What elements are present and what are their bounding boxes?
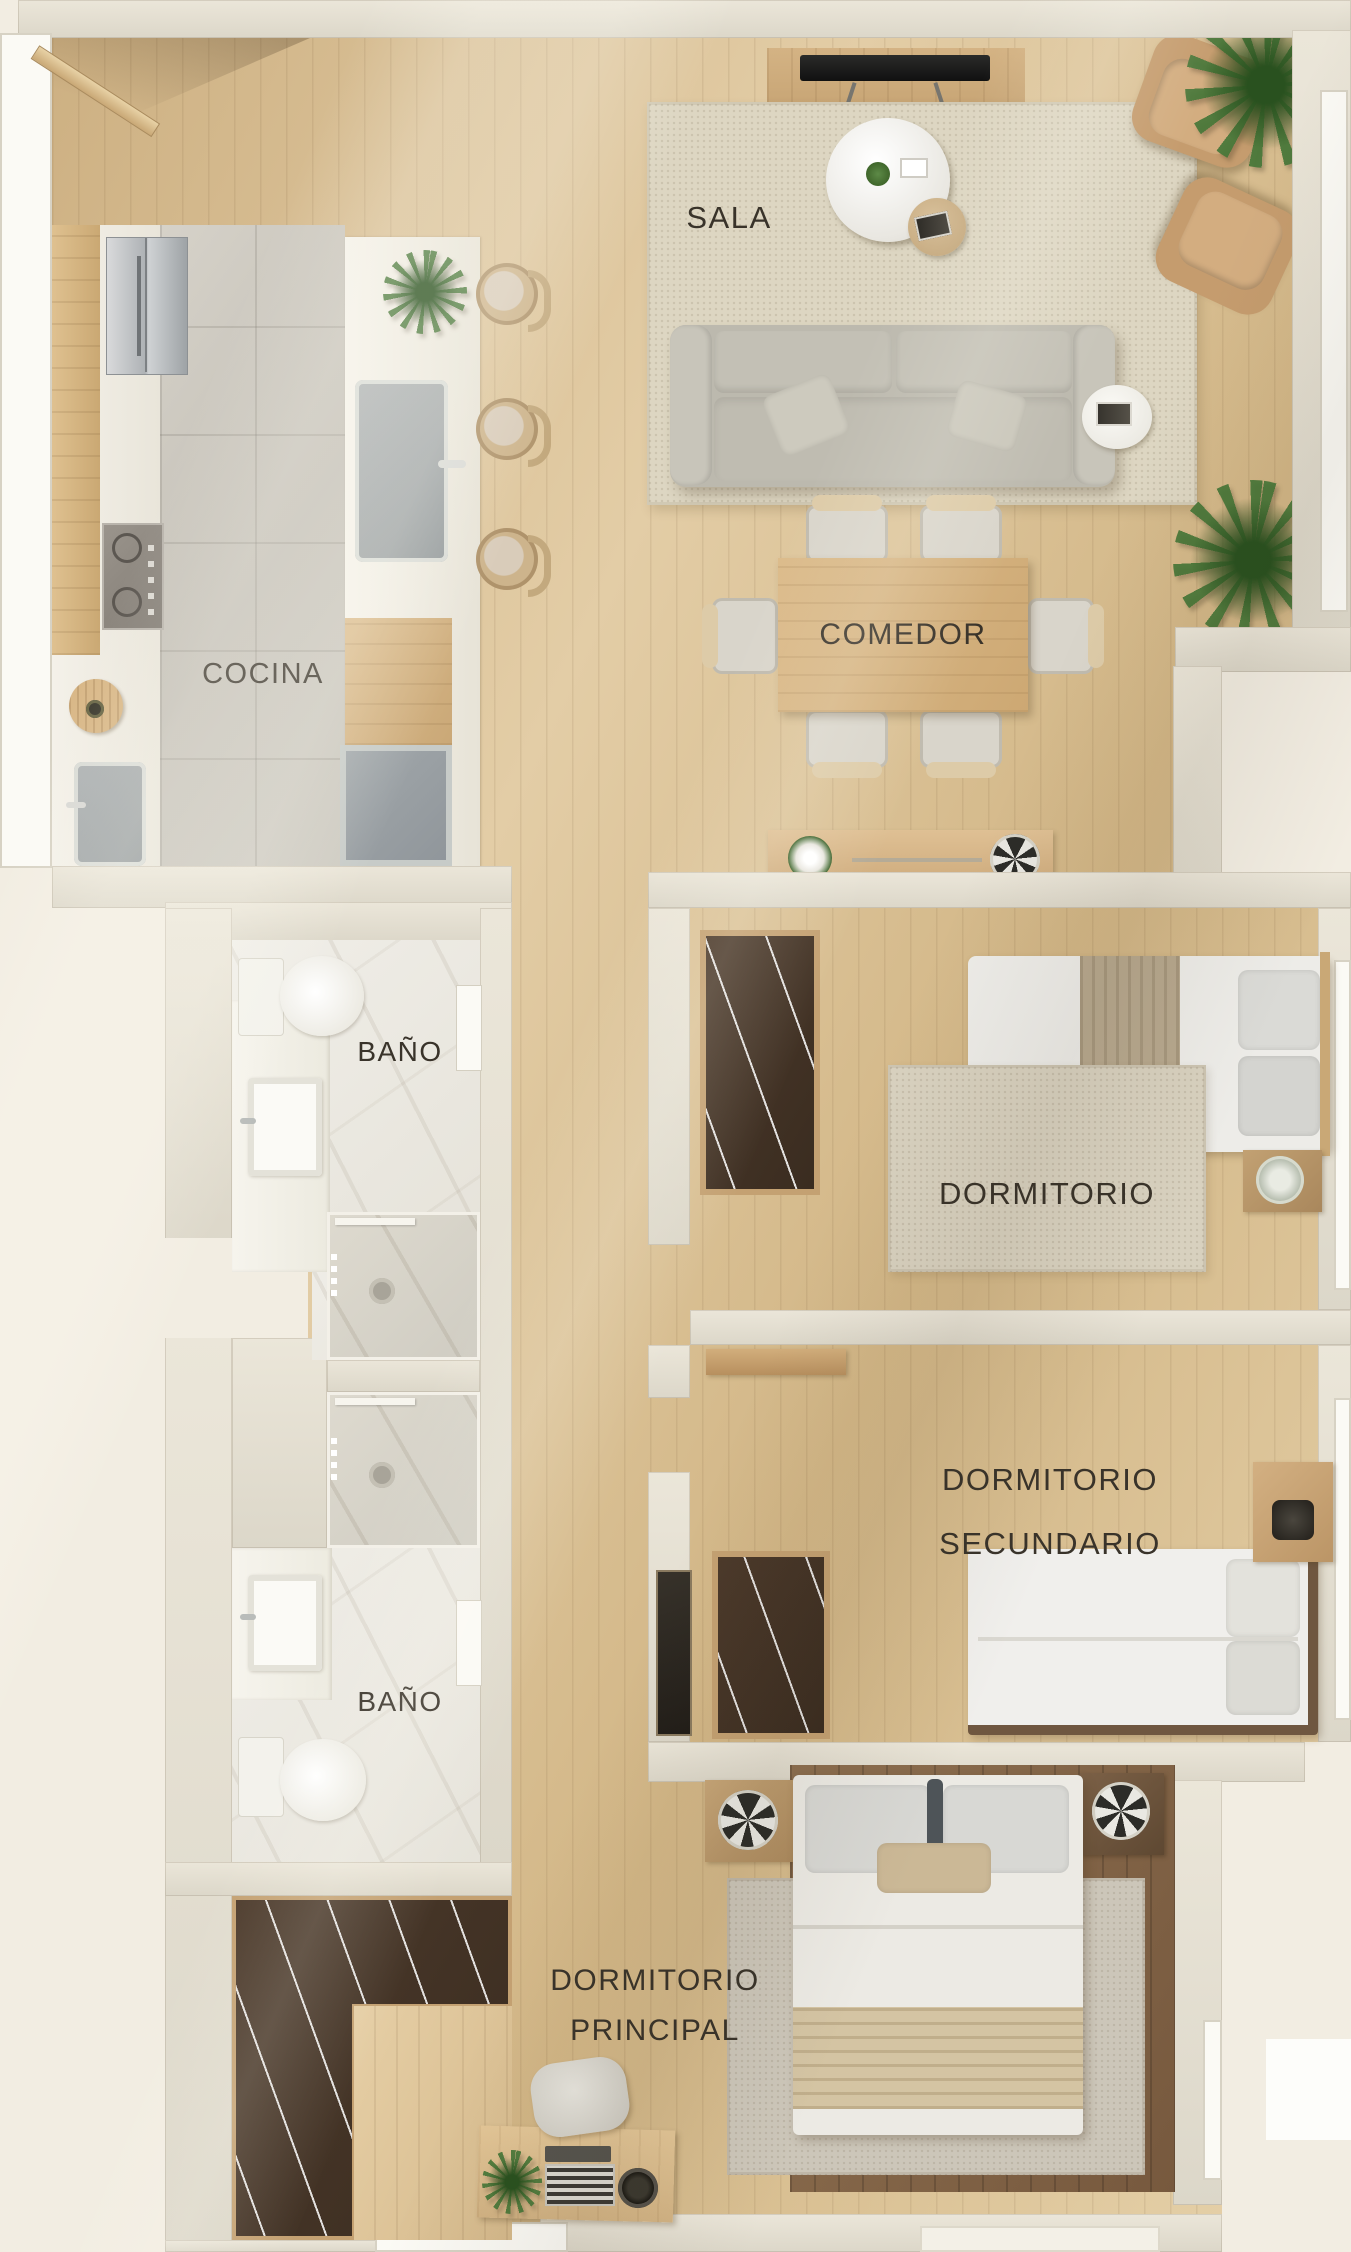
bottle-on-table	[86, 700, 104, 718]
clock-decor-icon	[1256, 1156, 1304, 1204]
window-secundario-right	[1334, 1398, 1351, 1720]
outside-left	[0, 866, 165, 2252]
coffee-table-book	[900, 158, 928, 178]
bathroom1-sink	[248, 1078, 322, 1176]
wall-shower-mid	[327, 1360, 480, 1392]
island-gray-unit	[340, 745, 452, 866]
window-sala-right	[1320, 90, 1348, 612]
label-sala: SALA	[647, 200, 811, 236]
shower-fixture-icon	[331, 1254, 337, 1296]
island-sink	[355, 380, 448, 562]
wall-shower-b-left	[232, 1338, 327, 1548]
refrigerator-door-split	[145, 238, 147, 372]
burner	[112, 533, 142, 563]
outside-right-bottom	[1222, 1742, 1351, 2252]
dining-chair-back	[812, 762, 882, 778]
wall-bath2-bottom	[165, 1862, 512, 1896]
sofa-arm-left	[670, 325, 712, 485]
wall-left-lower-a	[165, 908, 232, 1250]
bed-principal	[793, 1775, 1083, 2135]
label-dormitorio-principal: DORMITORIO PRINCIPAL	[510, 1956, 800, 2055]
headboard	[1320, 952, 1330, 1156]
shower-fixture-icon	[331, 1438, 337, 1480]
laptop-icon	[545, 2146, 611, 2202]
bed-pillow	[1238, 970, 1320, 1050]
fan-decor-icon	[718, 1790, 778, 1850]
label-dormitorio: DORMITORIO	[888, 1176, 1206, 1212]
sofa	[670, 325, 1115, 487]
sofa-back-cushion	[896, 331, 1072, 393]
coffee-table-plant	[866, 162, 890, 186]
kitchen-sink	[74, 762, 146, 866]
kitchen-sink-faucet-icon	[66, 802, 86, 808]
window-dorm1-right	[1334, 960, 1351, 1290]
bathroom2-faucet-icon	[240, 1614, 256, 1620]
shower-glass-bar	[335, 1398, 415, 1405]
label-cocina: COCINA	[183, 658, 343, 691]
cup-icon	[618, 2168, 658, 2208]
bathroom2-door-leaf	[456, 1600, 482, 1686]
bed-pillow	[1226, 1559, 1300, 1637]
wall-hall-right-b	[648, 1345, 690, 1398]
label-dormitorio-secundario: DORMITORIO SECUNDARIO	[900, 1448, 1200, 1575]
dining-chair-back	[702, 604, 718, 668]
shower-stall	[327, 1392, 480, 1548]
shower-drain-icon	[369, 1278, 395, 1304]
window-left-strip	[0, 33, 52, 868]
stove-cooktop	[102, 523, 164, 630]
dining-chair	[806, 710, 888, 768]
label-bano-1: BAÑO	[340, 1036, 460, 1068]
wall-dormitorio-top	[648, 872, 1351, 908]
island-plant	[383, 250, 467, 334]
shelf-secundario	[706, 1349, 846, 1375]
island-lower-cabinet	[345, 618, 452, 745]
laptop-keyboard	[545, 2164, 615, 2206]
bathroom2-sink	[248, 1575, 322, 1671]
lumbar-pillow	[877, 1843, 991, 1893]
refrigerator-handle	[137, 256, 141, 356]
wall-left-lower-b	[165, 1330, 232, 2252]
bed-pillow	[1226, 1641, 1300, 1715]
wall-hall-right-a	[648, 908, 690, 1245]
floor-plan: SALA COCINA COMEDOR BAÑO DORMITORIO DORM…	[0, 0, 1351, 2252]
kitchen-tall-cabinet	[52, 225, 100, 655]
stove-knobs	[148, 535, 154, 615]
tv-icon	[800, 55, 990, 81]
outside-right-mid	[1222, 672, 1351, 874]
label-bano-2: BAÑO	[340, 1686, 460, 1718]
dining-chair	[712, 598, 778, 674]
wall-divider-1	[690, 1310, 1351, 1345]
wardrobe-secundario	[712, 1551, 830, 1739]
bed-blanket	[793, 2007, 1083, 2109]
bed-fold-line	[793, 1925, 1083, 1929]
refrigerator	[106, 237, 188, 375]
wall-top	[18, 0, 1351, 38]
fan-decor-icon	[1092, 1782, 1150, 1840]
dining-chair	[920, 505, 1002, 563]
wall-hall-left	[480, 908, 512, 1868]
dining-chair	[806, 505, 888, 563]
bed-pillow	[1238, 1056, 1320, 1136]
shower-glass-bar	[335, 1218, 415, 1225]
window-bottom-mid	[920, 2226, 1160, 2252]
toilet-tank	[238, 1737, 284, 1817]
console-shelf-line	[852, 858, 982, 862]
bathroom1-faucet-icon	[240, 1118, 256, 1124]
exterior-white-box	[1266, 2039, 1351, 2140]
dining-chair	[920, 710, 1002, 768]
burner	[112, 587, 142, 617]
dining-chair-back	[812, 495, 882, 511]
wardrobe-dormitorio	[700, 930, 820, 1195]
island-faucet-icon	[438, 460, 466, 468]
label-comedor: COMEDOR	[798, 618, 1008, 652]
dormitorio-rug	[888, 1065, 1206, 1272]
toilet-bowl	[280, 1739, 366, 1821]
bed-secundario	[968, 1549, 1318, 1735]
shower-drain-icon	[369, 1462, 395, 1488]
desk-plant	[482, 2150, 542, 2214]
window-principal-right	[1203, 2020, 1222, 2180]
dining-chair	[1028, 598, 1094, 674]
mirror-secundario	[656, 1570, 692, 1736]
dining-chair-back	[926, 495, 996, 511]
decor-item-dark	[1272, 1500, 1314, 1540]
dining-chair-back	[926, 762, 996, 778]
toilet-tank	[238, 958, 284, 1036]
dining-chair-back	[1088, 604, 1104, 668]
laptop-screen	[545, 2146, 611, 2162]
toilet-bowl	[280, 956, 364, 1036]
shower-stall	[327, 1212, 480, 1360]
book-on-white-table	[1096, 402, 1132, 426]
